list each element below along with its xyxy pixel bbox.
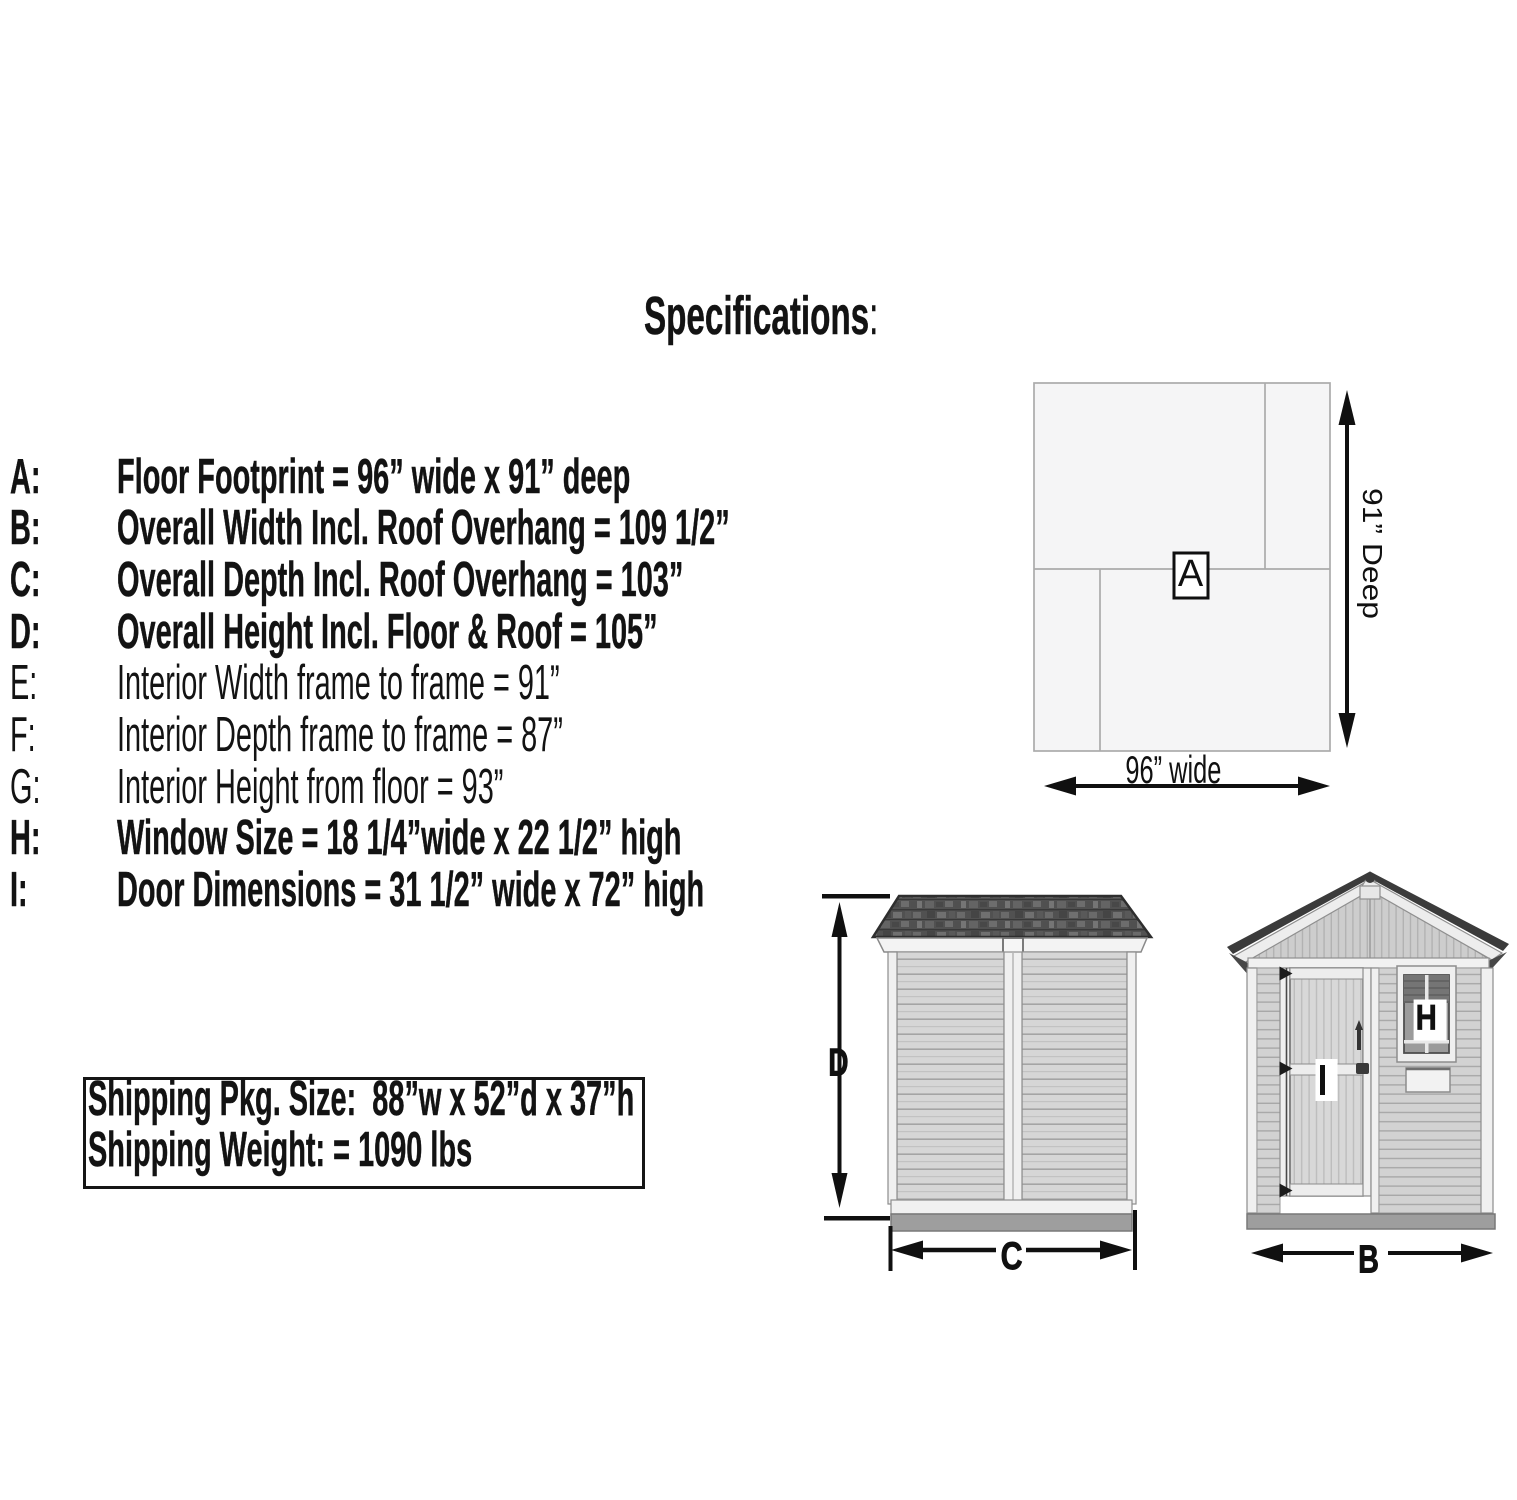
svg-text:C: C	[1001, 1234, 1023, 1277]
svg-text:96” wide: 96” wide	[1125, 749, 1221, 792]
svg-text:91” Deep: 91” Deep	[1357, 488, 1388, 619]
svg-text:H: H	[1416, 998, 1437, 1037]
svg-text:A: A	[1178, 553, 1204, 595]
svg-text:B: B	[1358, 1238, 1379, 1281]
svg-text:D: D	[828, 1041, 848, 1085]
